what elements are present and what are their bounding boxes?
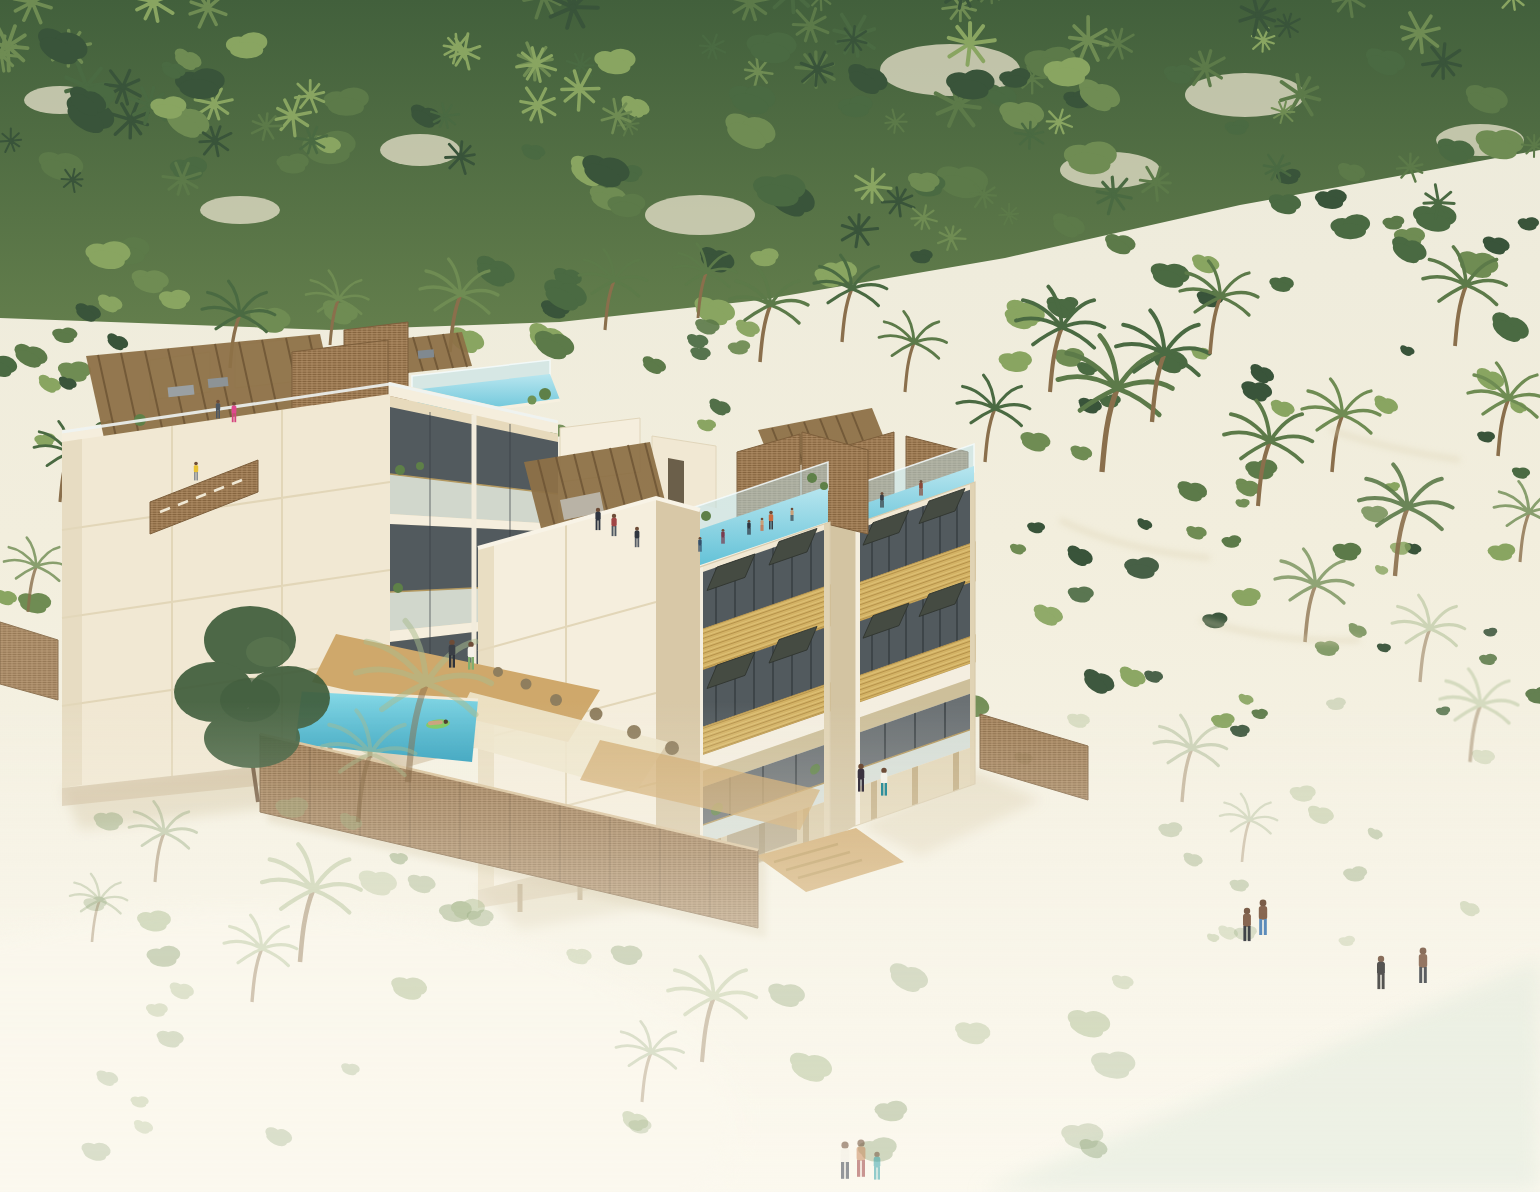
rendering-canvas [0, 0, 1540, 1192]
architectural-rendering [0, 0, 1540, 1192]
